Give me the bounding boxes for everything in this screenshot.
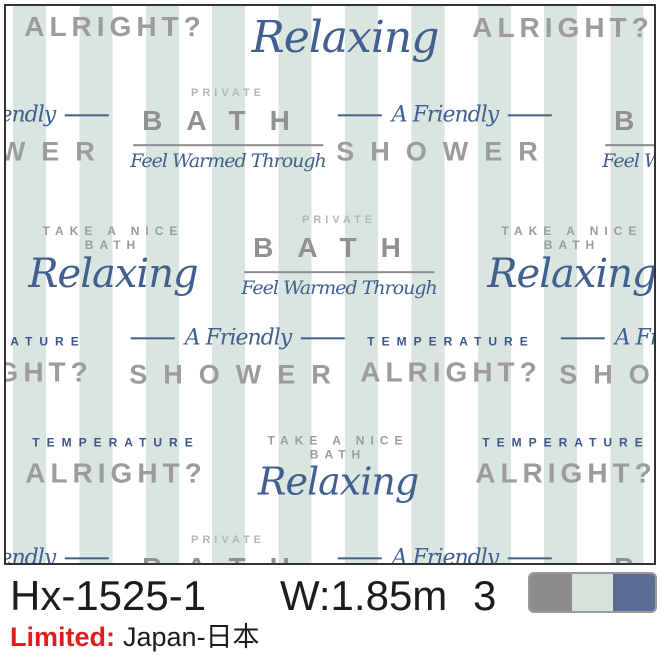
divider-line bbox=[244, 271, 434, 273]
dash-line bbox=[131, 337, 175, 339]
temperature-text: TEMPERATURE bbox=[4, 336, 93, 350]
shower-text: SHOWER bbox=[328, 137, 562, 168]
take-a-nice-text: TAKE A NICE bbox=[487, 225, 656, 239]
feel-warmed-through-text: Feel Warmed Through bbox=[602, 151, 656, 173]
a-friendly-line: A Friendly bbox=[121, 325, 355, 350]
take-a-nice-text: TAKE A NICE bbox=[258, 434, 418, 448]
bath-text: BATH bbox=[602, 552, 656, 565]
color-swatch-gray bbox=[530, 574, 572, 611]
colorway-swatches bbox=[528, 572, 657, 613]
color-swatch-mint bbox=[572, 574, 614, 611]
motif-bath-block: PRIVATEBATHFeel Warmed Through bbox=[130, 534, 326, 565]
a-friendly-line: A Friendly bbox=[4, 102, 119, 127]
motif-friendly-shower: A FriendlySHOWER bbox=[328, 102, 562, 167]
alright-text: ALRIGHT? bbox=[25, 457, 207, 489]
colorway-count: 3 bbox=[473, 574, 496, 618]
a-friendly-text: A Friendly bbox=[392, 545, 498, 565]
shower-text: SHOWER bbox=[4, 137, 119, 168]
product-card: ALRIGHT?RelaxingALRIGHT?A FriendlySHOWER… bbox=[0, 0, 666, 670]
a-friendly-text: A Friendly bbox=[4, 102, 55, 127]
dash-line bbox=[65, 114, 109, 116]
relaxing-script-text: Relaxing bbox=[258, 462, 418, 502]
product-code: Hx-1525-1 bbox=[10, 574, 206, 618]
motif-take-relax: TAKE A NICEBATHRelaxing bbox=[487, 225, 656, 295]
relaxing-script-text: Relaxing bbox=[28, 253, 197, 295]
dash-line bbox=[508, 114, 552, 116]
alright-text: ALRIGHT? bbox=[24, 11, 206, 43]
bath-text: BATH bbox=[241, 232, 437, 264]
temperature-text: TEMPERATURE bbox=[360, 336, 542, 350]
dash-line bbox=[338, 557, 382, 559]
a-friendly-text: A Friendly bbox=[185, 325, 291, 350]
a-friendly-line: A Friendly bbox=[551, 325, 656, 350]
motif-alright: ALRIGHT? bbox=[472, 12, 654, 44]
a-friendly-line: A Friendly bbox=[4, 545, 119, 565]
availability-line: Limited:Japan-日本 bbox=[10, 622, 260, 652]
alright-text: ALRIGHT? bbox=[360, 356, 542, 388]
motif-friendly-shower: A FriendlySHOWER bbox=[4, 545, 119, 565]
divider-line bbox=[605, 144, 656, 146]
alright-text: ALRIGHT? bbox=[4, 356, 93, 388]
a-friendly-text: A Friendly bbox=[615, 325, 656, 350]
region-label: Japan-日本 bbox=[123, 622, 260, 652]
take-a-nice-text: TAKE A NICE bbox=[28, 225, 197, 239]
private-text: PRIVATE bbox=[602, 87, 656, 100]
feel-warmed-through-text: Feel Warmed Through bbox=[130, 151, 326, 173]
motif-bath-block: PRIVATEBATHFeel Warmed Through bbox=[602, 534, 656, 565]
a-friendly-line: A Friendly bbox=[328, 545, 562, 565]
limited-label: Limited: bbox=[10, 622, 115, 652]
private-text: PRIVATE bbox=[130, 87, 326, 100]
a-friendly-text: A Friendly bbox=[4, 545, 55, 565]
motif-take-relax: TAKE A NICEBATHRelaxing bbox=[28, 225, 197, 295]
motif-temp-alright: TEMPERATUREALRIGHT? bbox=[25, 437, 207, 490]
motif-take-relax: TAKE A NICEBATHRelaxing bbox=[258, 434, 418, 501]
motif-friendly-shower: A FriendlySHOWER bbox=[551, 325, 656, 390]
motif-bath-block: PRIVATEBATHFeel Warmed Through bbox=[602, 87, 656, 173]
relaxing-script-text: Relaxing bbox=[252, 15, 439, 61]
private-text: PRIVATE bbox=[602, 534, 656, 547]
private-text: PRIVATE bbox=[130, 534, 326, 547]
dash-line bbox=[65, 557, 109, 559]
dash-line bbox=[301, 337, 345, 339]
feel-warmed-through-text: Feel Warmed Through bbox=[241, 278, 437, 300]
color-swatch-blue bbox=[613, 574, 655, 611]
relaxing-script-text: Relaxing bbox=[487, 253, 656, 295]
motif-alright: ALRIGHT? bbox=[24, 11, 206, 43]
temperature-text: TEMPERATURE bbox=[475, 437, 656, 451]
motif-temp-alright: TEMPERATUREALRIGHT? bbox=[360, 336, 542, 389]
wallpaper-pattern-preview: ALRIGHT?RelaxingALRIGHT?A FriendlySHOWER… bbox=[4, 4, 656, 565]
motif-bath-block: PRIVATEBATHFeel Warmed Through bbox=[130, 87, 326, 173]
motif-friendly-shower: A FriendlySHOWER bbox=[4, 102, 119, 167]
temperature-text: TEMPERATURE bbox=[25, 437, 207, 451]
divider-line bbox=[133, 144, 323, 146]
bath-text: BATH bbox=[130, 552, 326, 565]
alright-text: ALRIGHT? bbox=[475, 457, 656, 489]
private-text: PRIVATE bbox=[241, 214, 437, 227]
a-friendly-line: A Friendly bbox=[328, 102, 562, 127]
product-info: Hx-1525-1 W:1.85m 3 Limited:Japan-日本 bbox=[0, 565, 666, 670]
motif-friendly-shower: A FriendlySHOWER bbox=[328, 545, 562, 565]
motif-friendly-shower: A FriendlySHOWER bbox=[121, 325, 355, 390]
motif-bath-block: PRIVATEBATHFeel Warmed Through bbox=[241, 214, 437, 300]
dash-line bbox=[338, 114, 382, 116]
bath-text: BATH bbox=[130, 105, 326, 137]
shower-text: SHOWER bbox=[121, 360, 355, 391]
motif-relaxing: Relaxing bbox=[252, 15, 439, 61]
dash-line bbox=[561, 337, 605, 339]
shower-text: SHOWER bbox=[551, 360, 656, 391]
dash-line bbox=[508, 557, 552, 559]
roll-width-label: W:1.85m bbox=[280, 574, 447, 618]
alright-text: ALRIGHT? bbox=[472, 12, 654, 44]
a-friendly-text: A Friendly bbox=[392, 102, 498, 127]
motif-temp-alright: TEMPERATUREALRIGHT? bbox=[4, 336, 93, 389]
bath-text: BATH bbox=[602, 105, 656, 137]
motif-temp-alright: TEMPERATUREALRIGHT? bbox=[475, 437, 656, 490]
